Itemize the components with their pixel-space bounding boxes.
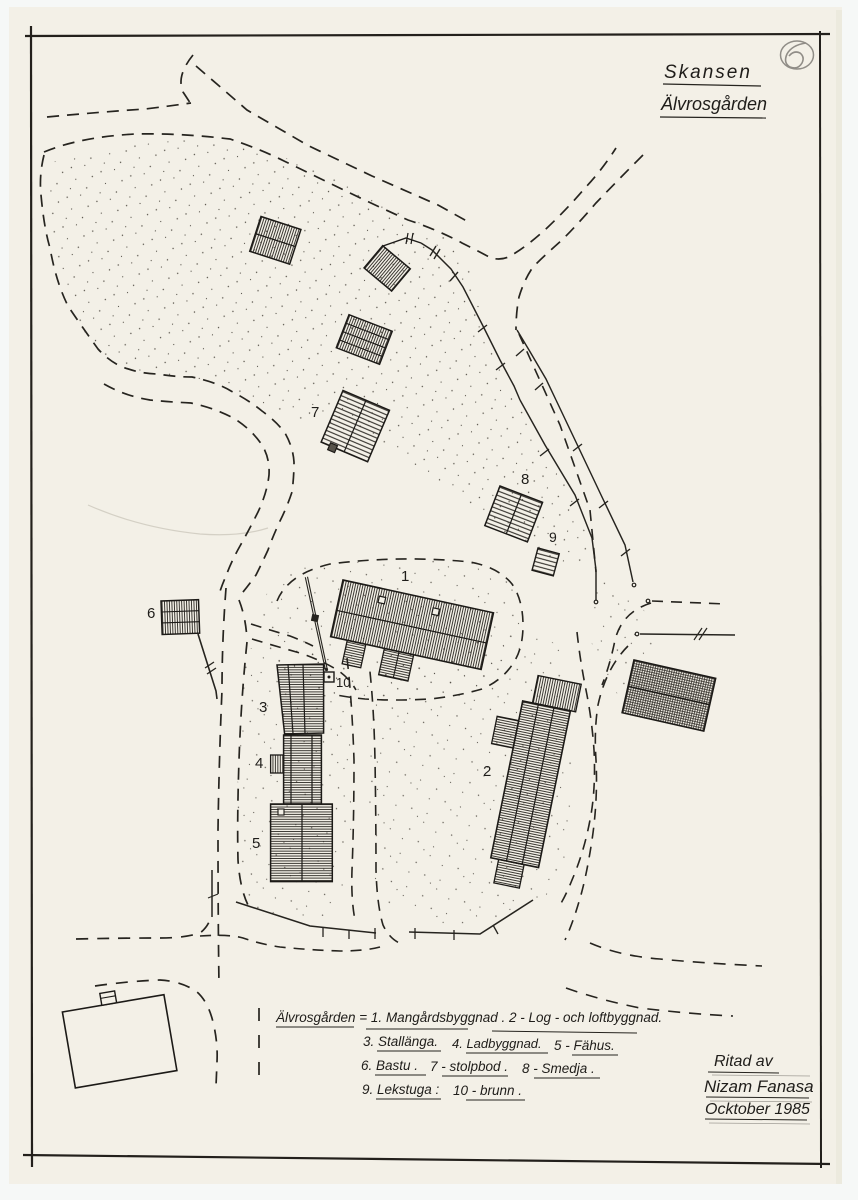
svg-text:2: 2 [483,763,491,780]
svg-text:10 - brunn .: 10 - brunn . [453,1083,522,1098]
svg-text:3. Stallänga.: 3. Stallänga. [363,1034,438,1049]
svg-text:6: 6 [147,605,155,622]
svg-text:10: 10 [336,675,350,690]
svg-text:Nizam Fanasa: Nizam Fanasa [704,1077,814,1096]
svg-text:Älvrosgården = 1. Mangårdsbygg: Älvrosgården = 1. Mangårdsbyggnad . 2 - … [275,1010,662,1025]
svg-text:6. Bastu .: 6. Bastu . [361,1058,418,1073]
svg-text:4. Ladbyggnad.: 4. Ladbyggnad. [452,1036,542,1051]
svg-text:Ocktober 1985: Ocktober 1985 [705,1101,810,1118]
svg-text:9: 9 [549,529,557,545]
svg-text:8: 8 [521,471,529,488]
svg-text:7 - stolpbod .: 7 - stolpbod . [430,1059,508,1074]
svg-text:9. Lekstuga :: 9. Lekstuga : [362,1082,440,1097]
svg-text:Ritad av: Ritad av [714,1053,774,1070]
svg-text:5 - Fähus.: 5 - Fähus. [554,1038,615,1053]
svg-text:4: 4 [255,755,263,772]
svg-text:Skansen: Skansen [664,62,752,83]
svg-text:5: 5 [252,835,260,852]
svg-text:3: 3 [259,699,267,716]
svg-text:8 - Smedja .: 8 - Smedja . [522,1061,595,1076]
svg-text:Älvrosgården: Älvrosgården [660,94,767,114]
svg-text:7: 7 [311,404,319,421]
svg-text:1: 1 [401,568,409,585]
